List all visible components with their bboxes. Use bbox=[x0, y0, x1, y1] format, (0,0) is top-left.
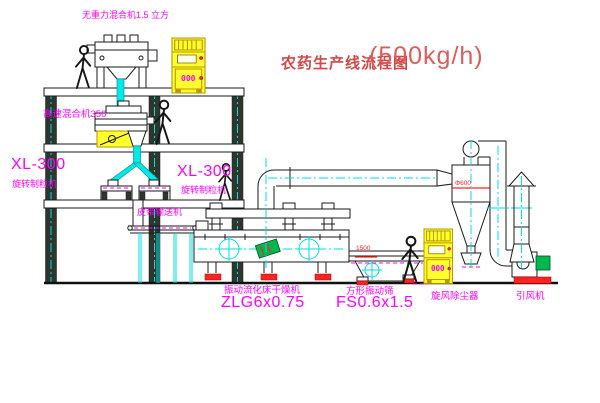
high-speed-mixer-label: 高速混合机350 bbox=[43, 110, 106, 120]
person-figure bbox=[76, 46, 90, 88]
screen-length-dimension: 1500 bbox=[356, 245, 371, 252]
gravity-mixer-label: 无重力混合机1.5 立方 bbox=[82, 11, 169, 20]
control-cabinet-top bbox=[172, 38, 205, 93]
dryer-model-label: ZLG6x0.75 bbox=[221, 295, 305, 311]
cabinet-display-ground: 000 bbox=[431, 264, 445, 273]
granulator-left-model: XL-300 bbox=[11, 157, 66, 173]
cyclone-label: 旋风除尘器 bbox=[431, 292, 479, 302]
screen-model-label: FS0.6x1.5 bbox=[336, 295, 413, 311]
exhaust-stack bbox=[507, 172, 536, 268]
fan-label: 引风机 bbox=[516, 292, 545, 302]
cabinet-display-top: 000 bbox=[181, 74, 196, 83]
control-cabinet-ground bbox=[424, 229, 453, 283]
granulator-right-model: XL-300 bbox=[177, 164, 232, 180]
granulator-left-name: 旋转制粒机 bbox=[12, 180, 57, 189]
belt-conveyor-label: 皮带输送机 bbox=[137, 208, 182, 217]
diagram-capacity: (500kg/h) bbox=[369, 42, 484, 71]
granulator-right-name: 旋转制粒机 bbox=[181, 186, 226, 195]
belt-conveyor bbox=[128, 226, 197, 283]
cyclone-diameter-dimension: Φ600 bbox=[455, 180, 471, 187]
granulator-right bbox=[139, 180, 170, 200]
pesticide-production-line-diagram: 000 000 Φ600 1500 农药生产线流程图 (500kg/h) 无重力… bbox=[0, 0, 600, 403]
fluid-bed-dryer bbox=[194, 203, 350, 280]
granulator-left bbox=[101, 180, 132, 200]
